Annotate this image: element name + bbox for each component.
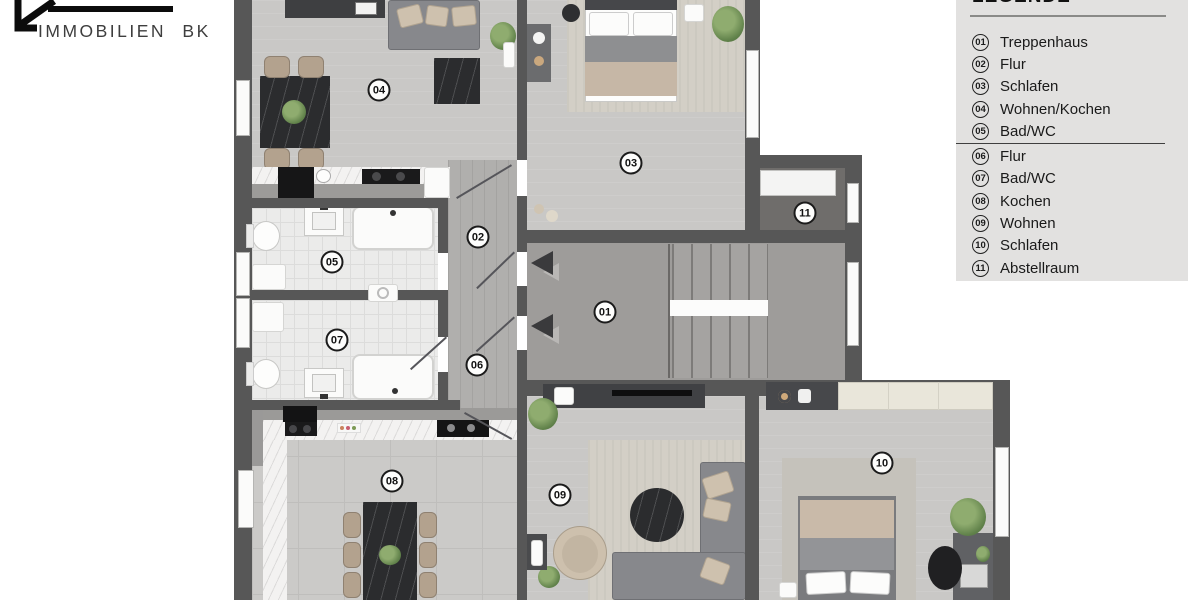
table-plant — [379, 545, 401, 565]
wall-spine-d — [517, 350, 527, 600]
office-chair — [928, 546, 962, 590]
bed-headboard — [585, 0, 677, 10]
deco-frame — [355, 2, 377, 15]
wall-07-08 — [234, 400, 460, 410]
plant — [950, 498, 986, 536]
burner — [396, 172, 405, 181]
table-plant — [282, 100, 306, 124]
chair — [264, 56, 290, 78]
legend-item-label: Wohnen/Kochen — [1000, 102, 1111, 117]
chair — [298, 56, 324, 78]
legend-divider — [956, 143, 1165, 144]
sink — [316, 169, 331, 183]
sink-basin — [312, 212, 336, 230]
desk-plant — [976, 546, 990, 562]
legend-item: 01Treppenhaus — [972, 31, 1180, 53]
legend-item: 07Bad/WC — [972, 168, 1180, 190]
legend-item-label: Bad/WC — [1000, 124, 1056, 139]
floor-plan-page: IMMOBILIEN BK — [0, 0, 1200, 600]
wall-spine-a — [517, 0, 527, 160]
washer-drum — [377, 287, 389, 299]
plant — [712, 6, 744, 42]
legend-item-number: 11 — [972, 260, 989, 277]
legend-item-label: Flur — [1000, 149, 1026, 164]
stair-landing — [670, 300, 768, 316]
pillow-white — [589, 12, 629, 36]
sofa-pillow — [451, 5, 477, 27]
bath-cabinet — [252, 302, 284, 332]
chair — [419, 512, 437, 538]
deco-cup — [798, 389, 811, 403]
wall-04-05 — [234, 198, 448, 208]
deco-donut — [778, 390, 791, 403]
legend-item-number: 05 — [972, 123, 989, 140]
nightstand — [562, 4, 580, 22]
entrance-arrow-icon — [531, 251, 553, 275]
legend-title: LEGENDE — [972, 0, 1071, 8]
bed-blanket-beige — [585, 62, 677, 96]
burner — [289, 425, 297, 433]
wall-05-07 — [234, 290, 448, 300]
pillow-white — [805, 571, 846, 595]
wall-stairhall-top — [527, 230, 862, 243]
cooktop — [362, 169, 420, 184]
wall-bath5-a — [438, 208, 448, 253]
radiator — [531, 540, 543, 566]
legend-item-label: Schlafen — [1000, 238, 1058, 253]
wardrobe — [838, 382, 993, 410]
pillow-white — [633, 12, 673, 36]
wall-bath7-b — [438, 372, 448, 410]
logo-text: IMMOBILIEN BK — [38, 21, 211, 42]
wall-09-10 — [745, 396, 759, 600]
wall-spine-b — [517, 196, 527, 252]
legend-item-label: Schlafen — [1000, 79, 1058, 94]
legend-item: 05Bad/WC — [972, 120, 1180, 142]
room-label: 06 — [466, 354, 489, 377]
cup — [534, 56, 544, 66]
room-label: 03 — [620, 152, 643, 175]
entrance-arrow-icon — [531, 314, 553, 338]
legend-item: 06Flur — [972, 145, 1180, 167]
coffee-table — [434, 58, 480, 104]
tub-faucet — [392, 388, 398, 394]
floor-deco — [534, 204, 544, 214]
chair — [343, 572, 361, 598]
wardrobe-divider — [938, 382, 939, 410]
burner — [372, 172, 381, 181]
legend-item: 11Abstellraum — [972, 257, 1180, 279]
bed-blanket-gray — [800, 538, 894, 570]
room-label: 02 — [467, 226, 490, 249]
window-schlafen3 — [746, 50, 759, 138]
legend-item-number: 03 — [972, 78, 989, 95]
bed-blanket-gray — [585, 36, 677, 62]
legend-item: 10Schlafen — [972, 235, 1180, 257]
armchair-seat — [562, 535, 598, 573]
chair — [343, 542, 361, 568]
round-coffee-table — [630, 488, 684, 542]
legend-items: 01Treppenhaus02Flur03Schlafen04Wohnen/Ko… — [972, 31, 1180, 279]
nightstand — [684, 4, 704, 22]
legend-item-number: 08 — [972, 193, 989, 210]
tv — [612, 390, 692, 396]
stairs-upper-flight — [672, 244, 768, 300]
window-left-4 — [238, 470, 254, 528]
tub-faucet — [390, 210, 396, 216]
window-left-2 — [236, 252, 250, 296]
legend-item-label: Abstellraum — [1000, 261, 1079, 276]
spice-dot — [352, 426, 356, 430]
room-label: 01 — [594, 301, 617, 324]
chair — [419, 542, 437, 568]
nightstand — [779, 582, 797, 598]
kitchen-sink-unit — [278, 167, 314, 198]
toilet-tank — [246, 224, 254, 248]
wall-spine-c — [517, 286, 527, 316]
window-left-3 — [236, 298, 250, 348]
wardrobe-divider — [888, 382, 889, 410]
floor-deco — [546, 210, 558, 222]
legend-title-rule — [970, 15, 1166, 17]
legend-item-number: 06 — [972, 148, 989, 165]
legend-panel: LEGENDE 01Treppenhaus02Flur03Schlafen04W… — [956, 0, 1188, 281]
bed-blanket-beige — [800, 500, 894, 538]
wall-bath7-a — [438, 292, 448, 337]
kitchen-counter-left — [263, 440, 287, 600]
legend-item-number: 04 — [972, 101, 989, 118]
legend-item-label: Wohnen — [1000, 216, 1056, 231]
toilet — [252, 359, 280, 389]
door-abstellraum — [847, 183, 859, 223]
sofa-pillow — [425, 5, 450, 28]
window-left-1 — [236, 80, 250, 136]
legend-item-number: 07 — [972, 170, 989, 187]
burner — [303, 425, 311, 433]
legend-item: 03Schlafen — [972, 76, 1180, 98]
oven — [283, 406, 317, 422]
room-label: 11 — [794, 202, 817, 225]
chair — [419, 572, 437, 598]
legend-item-number: 10 — [972, 237, 989, 254]
fridge — [424, 167, 450, 198]
storage-shelf — [760, 170, 836, 196]
sink-basin — [312, 374, 336, 392]
spice-dot — [346, 426, 350, 430]
legend-item-number: 01 — [972, 34, 989, 51]
legend-item-label: Bad/WC — [1000, 171, 1056, 186]
sink-tap — [447, 424, 455, 432]
door-stairhall — [847, 262, 859, 346]
legend-item-label: Kochen — [1000, 194, 1051, 209]
faucet — [320, 394, 328, 399]
logo: IMMOBILIEN BK — [8, 0, 218, 52]
radiator — [503, 42, 515, 68]
flur6-floor — [448, 292, 517, 410]
room-label: 07 — [326, 329, 349, 352]
sink-tap — [467, 424, 475, 432]
legend-item-label: Treppenhaus — [1000, 35, 1088, 50]
laptop — [960, 564, 988, 588]
toilet — [252, 221, 280, 251]
shower-tray — [252, 264, 286, 290]
toilet-tank — [246, 362, 254, 386]
legend-item: 09Wohnen — [972, 212, 1180, 234]
pillow-white — [849, 571, 890, 595]
legend-item: 02Flur — [972, 53, 1180, 75]
room-label: 05 — [321, 251, 344, 274]
legend-item-number: 02 — [972, 56, 989, 73]
stair-rail — [668, 244, 670, 378]
stairs-lower-flight — [672, 316, 768, 378]
legend-item-label: Flur — [1000, 57, 1026, 72]
legend-item-number: 09 — [972, 215, 989, 232]
room-label: 04 — [368, 79, 391, 102]
room-label: 08 — [381, 470, 404, 493]
kettle — [533, 32, 545, 44]
spice-dot — [340, 426, 344, 430]
chair — [343, 512, 361, 538]
window-schlafen10 — [995, 447, 1009, 537]
room-label: 09 — [549, 484, 572, 507]
room-label: 10 — [871, 452, 894, 475]
legend-item: 08Kochen — [972, 190, 1180, 212]
radiator — [554, 387, 574, 405]
plant — [528, 398, 558, 430]
legend-item: 04Wohnen/Kochen — [972, 98, 1180, 120]
